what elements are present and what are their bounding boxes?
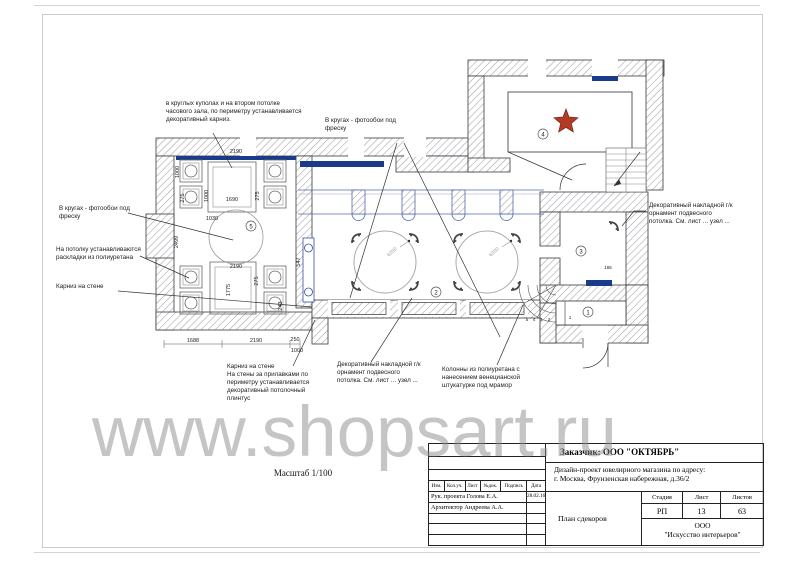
svg-text:2: 2	[548, 317, 551, 322]
coffer-squares	[180, 160, 286, 314]
dim: 165	[604, 265, 612, 270]
dim: 243	[278, 301, 284, 310]
title-block-main: Заказчик: ООО "ОКТЯБРЬ" Дизайн-проект юв…	[546, 444, 763, 545]
dim: 275	[254, 276, 260, 285]
annotation-cornice-bottom: Карниз на стене На стены за прилавками п…	[227, 363, 337, 403]
scale-label: Масштаб 1/100	[238, 468, 368, 478]
title-block: Изм. Кол.уч. Лист №док. Подпись Дата Рук…	[428, 443, 764, 546]
svg-text:5: 5	[526, 317, 529, 322]
dim: 275	[180, 193, 186, 202]
dim: 547	[296, 257, 302, 266]
blue-cornice-strip	[176, 156, 296, 160]
door-swing-upper	[560, 164, 586, 190]
sheets-label: Листов	[721, 492, 763, 503]
dim: 1030	[206, 216, 218, 222]
wall-display-rack	[303, 238, 314, 302]
stage-value: РП	[642, 504, 683, 518]
customer-line: Заказчик: ООО "ОКТЯБРЬ"	[546, 444, 763, 463]
company-name: ООО "Искусство интерьеров"	[642, 519, 763, 545]
blue-window-strip	[592, 76, 618, 81]
main-hall	[298, 161, 544, 317]
dim: 1688	[187, 338, 199, 344]
dim: 2190	[230, 149, 242, 155]
dim: 1690	[226, 197, 238, 203]
signature-date	[527, 503, 545, 513]
signature-empty-row	[429, 524, 545, 535]
signature-empty-row	[429, 514, 545, 525]
col-izm: Изм.	[429, 481, 445, 491]
dim: 1000	[204, 190, 210, 202]
annotation-moldings: На потолку устанавливаются раскладки из …	[56, 246, 168, 262]
revision-header-row: Изм. Кол.уч. Лист №док. Подпись Дата	[429, 481, 545, 492]
stage-label: Стадия	[642, 492, 683, 503]
col-podpis: Подпись	[501, 481, 527, 491]
sheets-value: 63	[721, 504, 763, 518]
col-koluch: Кол.уч.	[445, 481, 466, 491]
svg-text:3: 3	[540, 317, 543, 322]
dim: 1000	[291, 348, 303, 354]
annotation-cornice-left: Карниз на стене	[56, 283, 146, 291]
annotation-circles-photo-top: В кругах - фотообои под фреску	[325, 117, 425, 133]
signature-row: Рук. проекта Голова Е.А. 28.02.16	[429, 492, 545, 503]
display-band	[298, 190, 544, 221]
revision-empty-row	[429, 457, 545, 470]
circle-corner-ornaments	[352, 234, 520, 290]
annotation-ornament-right: Декоративный накладной г/к орнамент подв…	[649, 202, 757, 226]
drawing-sheet: 5 2 3 4 1 2190 1000 275 1000 1690 275 10…	[0, 0, 794, 561]
svg-text:1: 1	[569, 315, 572, 320]
signature-empty-row	[429, 535, 545, 545]
signature-date: 28.02.16	[527, 492, 545, 502]
sheet-title: План сдекоров	[546, 492, 642, 545]
title-block-revision-table: Изм. Кол.уч. Лист №док. Подпись Дата Рук…	[429, 444, 546, 545]
signature-role: Архитектор Андреева А.А.	[429, 503, 527, 513]
dim: 2190	[230, 264, 242, 270]
project-description: Дизайн-проект ювелирного магазина по адр…	[546, 463, 763, 492]
dim: 275	[255, 191, 261, 200]
sheet-value: 13	[683, 504, 721, 518]
ceiling-circle-right	[456, 231, 518, 293]
ceiling-circle-left	[354, 231, 416, 293]
annotation-ornament-bottom: Декоративный накладной г/к орнамент подв…	[337, 361, 447, 385]
dim: 2499	[174, 236, 180, 248]
circle-diameter-label: 6200	[386, 246, 398, 258]
dim: 250	[290, 337, 299, 343]
circle-diameter-label: 6200	[488, 246, 500, 258]
annotation-columns: Колонны из полиуретана с нанесением вене…	[442, 366, 556, 390]
blue-display-room3	[586, 280, 612, 286]
stage-grid: Стадия Лист Листов РП 13 63 ООО "Искусст…	[642, 492, 763, 545]
signature-role: Рук. проекта Голова Е.А.	[429, 492, 527, 502]
staircase-top-right	[606, 148, 646, 192]
top-ceiling-panel	[208, 162, 256, 212]
sheet-label: Лист	[683, 492, 721, 503]
counters	[328, 300, 528, 317]
blue-fresco-strip	[300, 161, 384, 167]
diagonal-wall	[508, 152, 572, 180]
annotation-dome-note: в круглых куполах и на втором потолке ча…	[166, 100, 326, 124]
dim: 1000	[175, 166, 181, 178]
annotation-circles-photo-left: В кругах - фотообои под фреску	[59, 205, 154, 221]
col-ndok: №док.	[481, 481, 502, 491]
dim: 2190	[250, 338, 262, 344]
signature-row: Архитектор Андреева А.А.	[429, 503, 545, 514]
revision-empty-row	[429, 444, 545, 457]
col-data: Дата	[527, 481, 545, 491]
room3-ornament	[609, 222, 618, 231]
col-list: Лист	[466, 481, 481, 491]
revision-empty-row	[429, 470, 545, 482]
dim-lines	[164, 340, 300, 348]
svg-text:4: 4	[533, 317, 536, 322]
dim: 1775	[226, 284, 232, 296]
